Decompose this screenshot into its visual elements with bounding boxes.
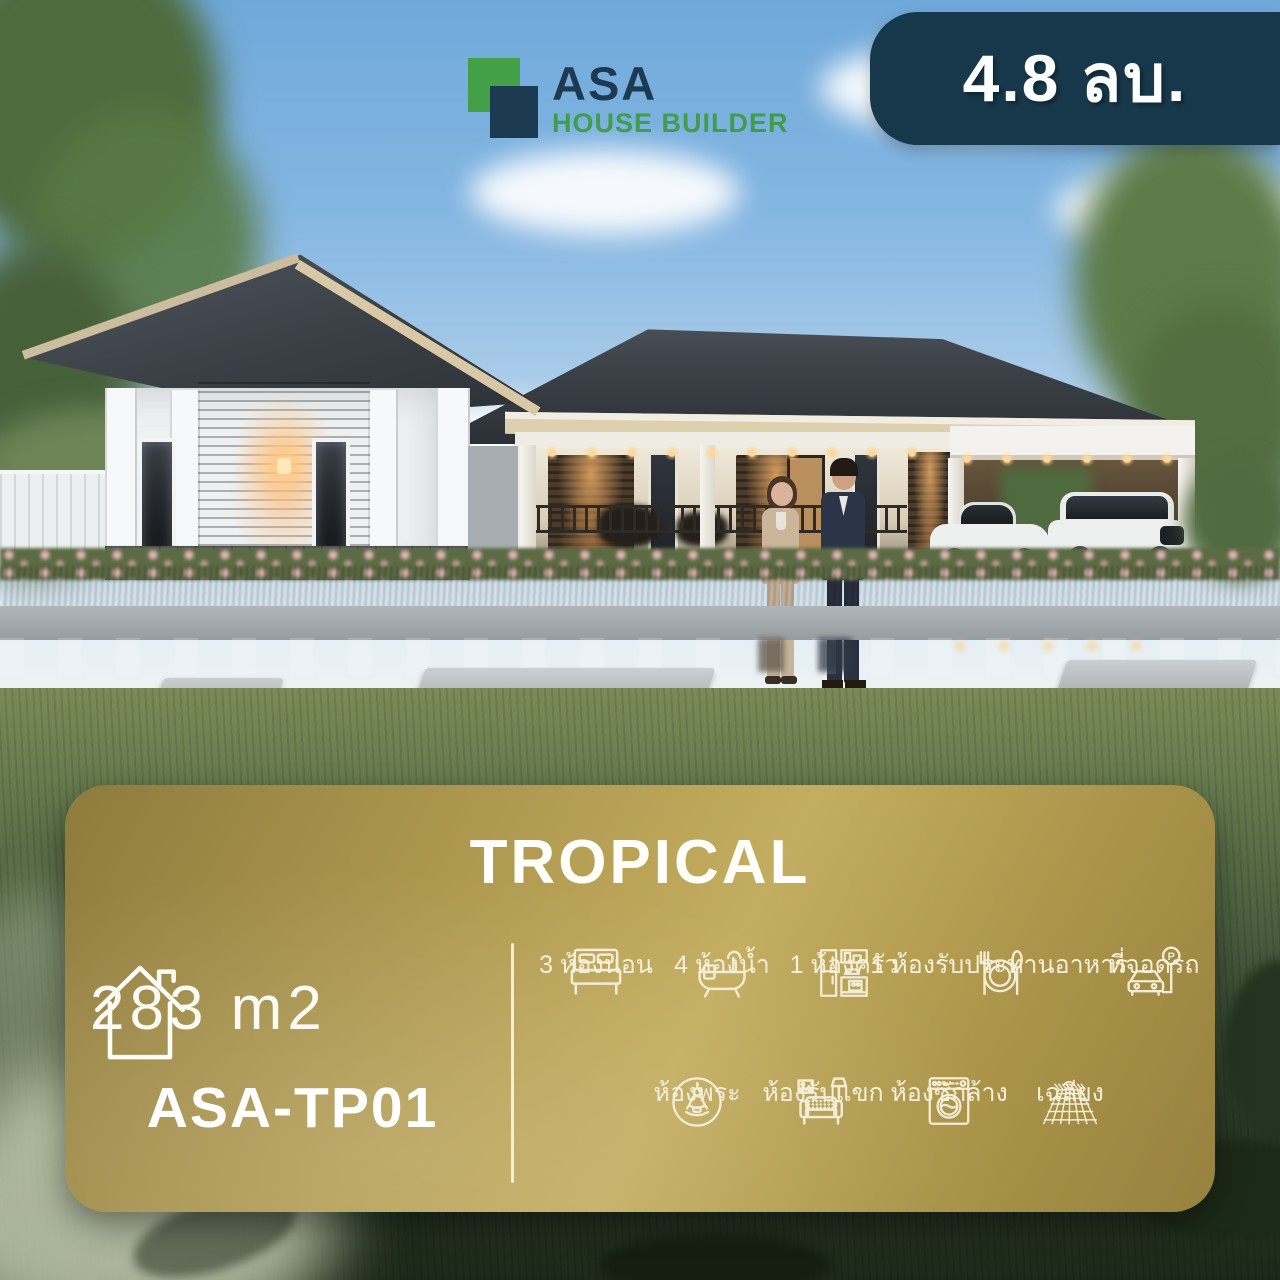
window bbox=[138, 438, 176, 558]
carport-lights bbox=[960, 452, 1185, 466]
brand-subname: HOUSE BUILDER bbox=[552, 108, 789, 139]
divider bbox=[511, 943, 514, 1183]
price-text: 4.8 ลบ. bbox=[963, 26, 1188, 131]
brand-logo: ASA HOUSE BUILDER bbox=[462, 48, 822, 148]
area-value: 283 m2 bbox=[90, 973, 327, 1044]
porch-lights bbox=[545, 446, 935, 460]
model-code: ASA-TP01 bbox=[120, 1075, 465, 1141]
brand-name: ASA bbox=[552, 56, 657, 111]
car-grille bbox=[1160, 526, 1184, 545]
walkway bbox=[0, 606, 1280, 640]
design-title: TROPICAL bbox=[65, 827, 1215, 898]
window bbox=[312, 438, 350, 558]
area-row: 283 m2 bbox=[90, 951, 510, 1065]
cloud bbox=[470, 150, 740, 235]
poster: ASA HOUSE BUILDER 4.8 ลบ. TROPICAL 283 m… bbox=[0, 0, 1280, 1280]
spec-card: TROPICAL 283 m2 ASA-TP01 3 ห้องนอน bbox=[65, 785, 1215, 1212]
price-badge: 4.8 ลบ. bbox=[870, 12, 1280, 145]
wall-sconce-light bbox=[277, 458, 291, 474]
logo-navy-square-icon bbox=[490, 86, 538, 138]
